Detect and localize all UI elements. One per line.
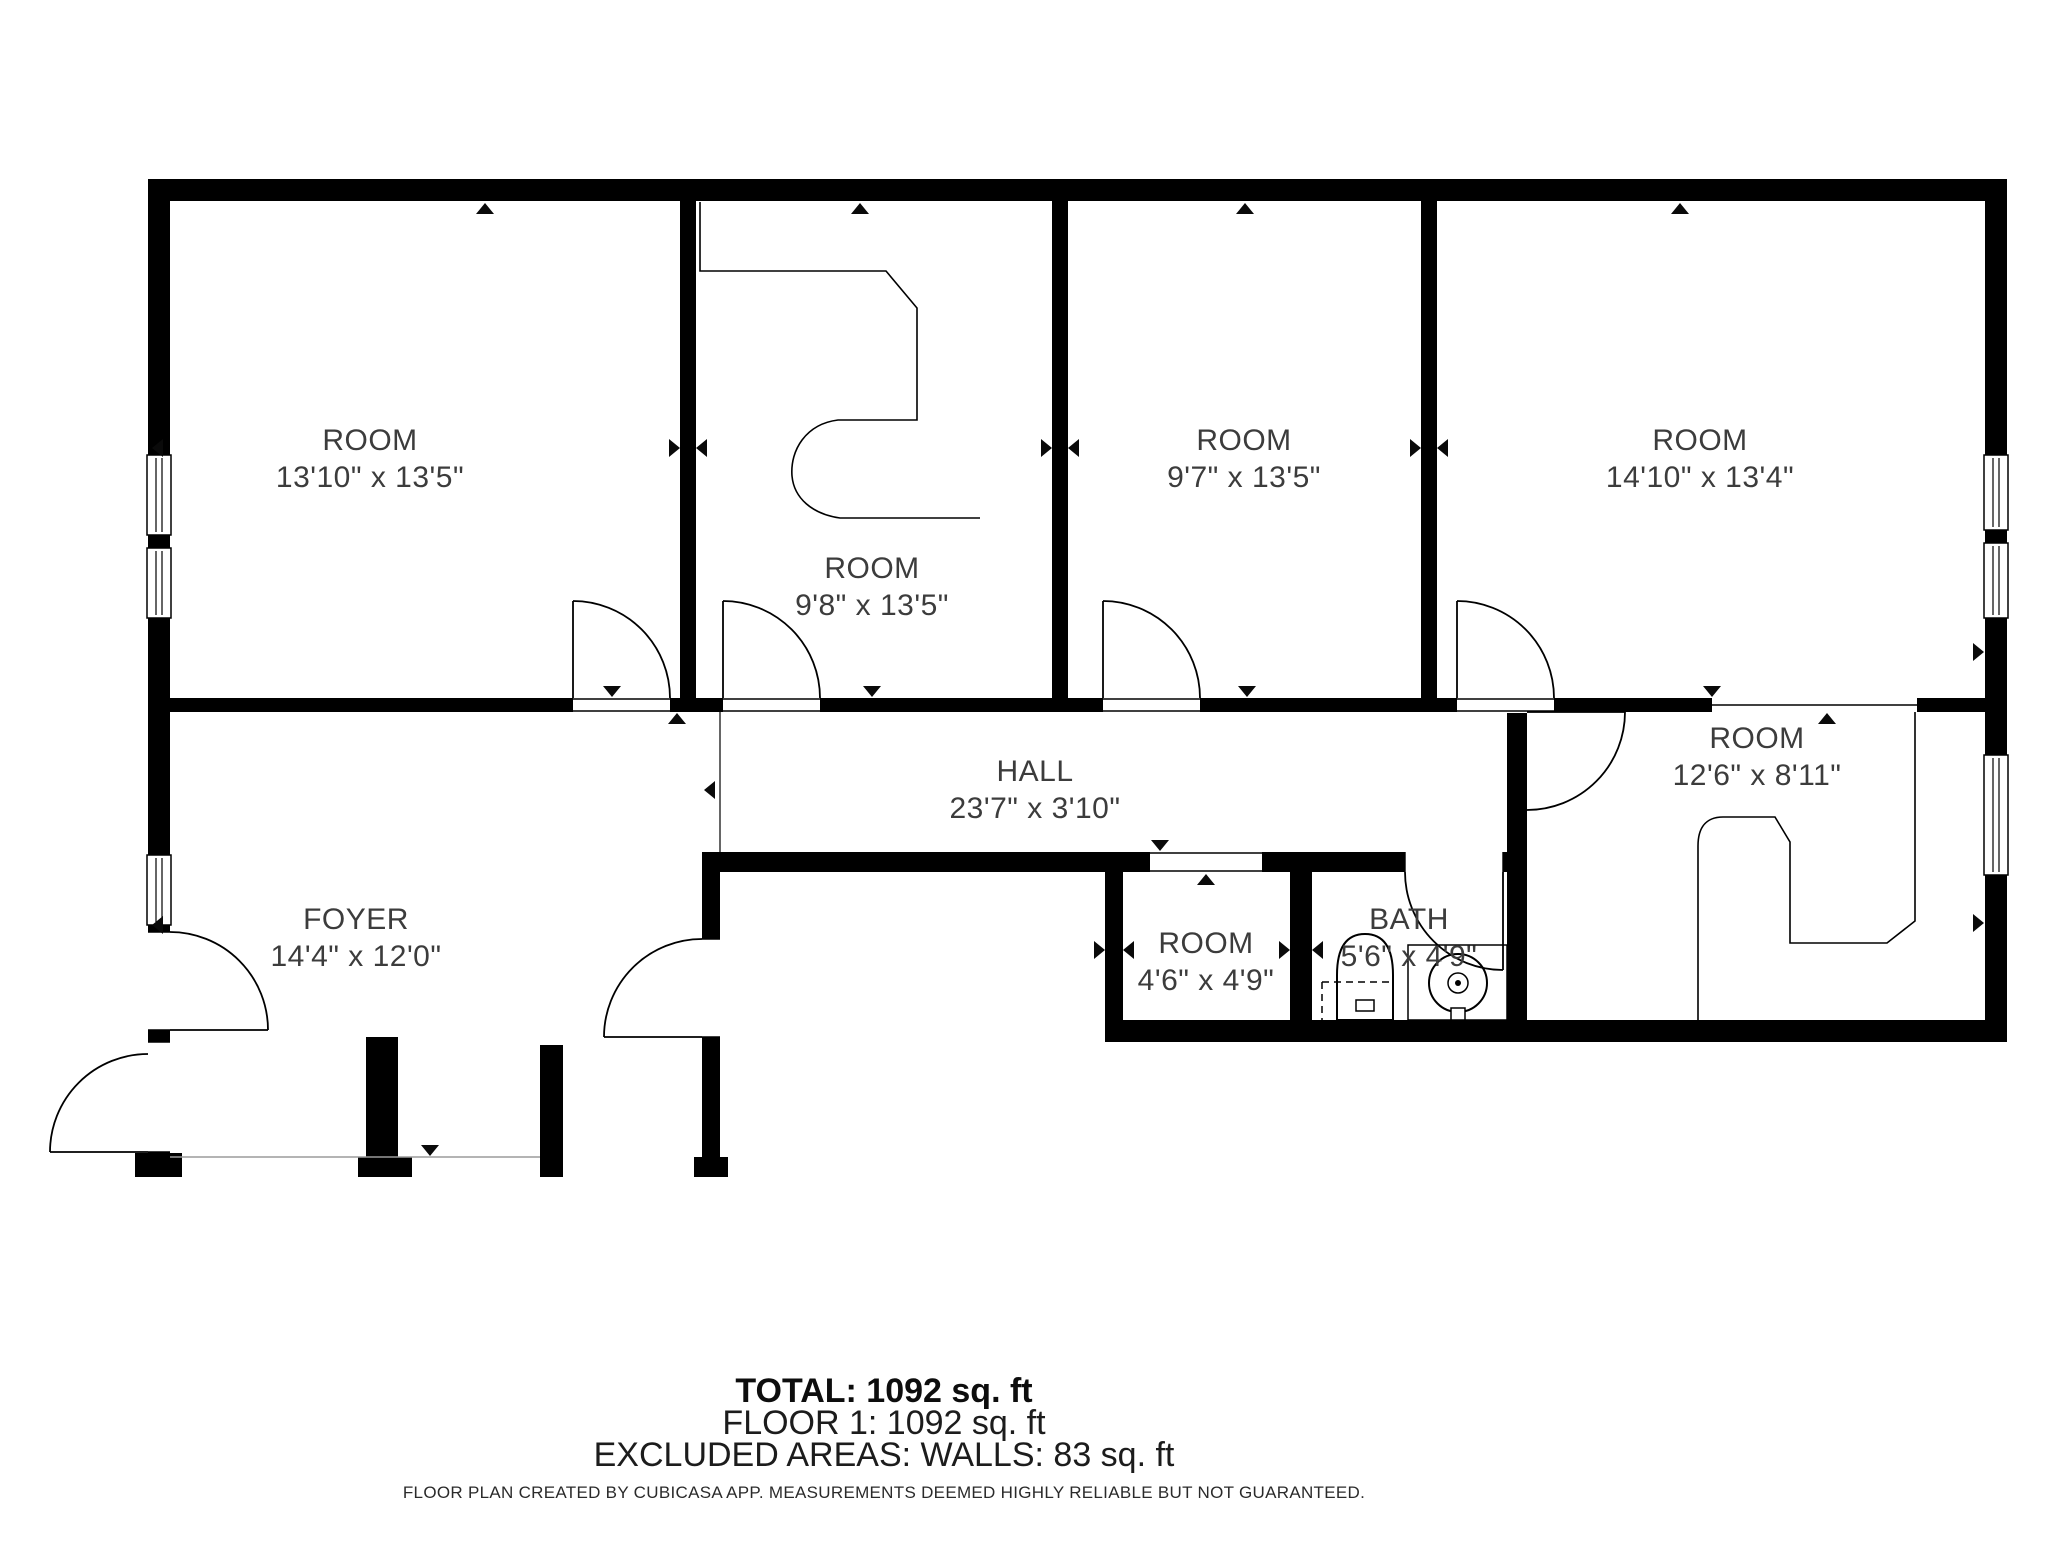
marker-left-icon [1312,941,1323,959]
wall-smallroom-left [1105,872,1123,1020]
marker-down-icon [863,686,881,697]
marker-left-icon [1437,439,1448,457]
marker-left-icon [704,781,715,799]
marker-down-icon [1703,686,1721,697]
marker-down-icon [1151,840,1169,851]
marker-up-icon [668,713,686,724]
bath-label: BATH [1369,903,1449,936]
wall-rightroom-left [1507,698,1527,1042]
room2-dims: 9'8" x 13'5" [795,589,949,622]
wall-room2-room3 [1052,201,1068,698]
door-opening-foyer-upper [147,932,171,1030]
doors [50,601,1625,1152]
window-room1-lower [147,548,171,618]
walls [135,179,2007,1177]
door-opening-bath [1405,851,1503,873]
marker-left-icon [1068,439,1079,457]
wall-top [148,179,2007,201]
footer-disclaimer: FLOOR PLAN CREATED BY CUBICASA APP. MEAS… [403,1483,1365,1502]
window-room1-upper [147,455,171,535]
door-opening-foyer-entry [147,1042,171,1152]
room3-label: ROOM [1196,424,1291,457]
rightroom-dims: 12'6" x 8'11" [1673,759,1842,792]
wall-foyer-right-base [694,1157,728,1177]
marker-up-icon [476,203,494,214]
marker-up-icon [1236,203,1254,214]
door-rightroom [1527,712,1625,810]
floor-plan-canvas: ROOM 13'10" x 13'5" ROOM 9'8" x 13'5" RO… [0,0,2048,1536]
marker-right-icon [1973,643,1984,661]
window-foyer [147,855,171,925]
room1-dims: 13'10" x 13'5" [276,461,464,494]
marker-right-icon [669,439,680,457]
door-foyer-upper [170,932,268,1030]
door-foyer-hall [604,939,702,1037]
marker-down-icon [421,1145,439,1156]
foyer-dims: 14'4" x 12'0" [270,940,441,973]
hall-label: HALL [996,755,1073,788]
marker-right-icon [1410,439,1421,457]
wall-smallroom-bath [1290,872,1312,1020]
bath-dims: 5'6" x 4'9" [1341,940,1478,973]
wall-bottom-right-section [1105,1020,2007,1042]
room4-label: ROOM [1652,424,1747,457]
window-rightroom [1984,755,2008,875]
stair-outline-room2 [700,202,980,518]
room4-dims: 14'10" x 13'4" [1606,461,1794,494]
door-room3 [1103,601,1200,698]
room3-dims: 9'7" x 13'5" [1167,461,1321,494]
hall-dims: 23'7" x 3'10" [949,792,1120,825]
marker-right-icon [1094,941,1105,959]
door-room1 [573,601,670,698]
marker-right-icon [1041,439,1052,457]
marker-up-icon [851,203,869,214]
marker-up-icon [1197,874,1215,885]
wall-hall-top [148,698,1985,712]
smallroom-dims: 4'6" x 4'9" [1138,964,1275,997]
opening-smallroom [1150,851,1262,873]
rightroom-label: ROOM [1709,722,1804,755]
room2-label: ROOM [824,552,919,585]
door-foyer-entry [50,1054,148,1152]
smallroom-label: ROOM [1158,927,1253,960]
wall-room1-room2 [680,201,696,698]
marker-right-icon [1973,914,1984,932]
wall-foyer-pillar [366,1037,398,1157]
window-room4-upper [1984,455,2008,530]
marker-right-icon [1279,941,1290,959]
marker-up-icon [1818,713,1836,724]
foyer-label: FOYER [303,903,409,936]
door-room4 [1457,601,1554,698]
door-opening-foyer-hall [701,939,721,1037]
wall-room3-room4 [1421,201,1437,698]
marker-left-icon [1123,941,1134,959]
marker-down-icon [603,686,621,697]
marker-down-icon [1238,686,1256,697]
floor-plan-page: ROOM 13'10" x 13'5" ROOM 9'8" x 13'5" RO… [0,0,2048,1536]
marker-left-icon [696,439,707,457]
wall-foyer-pillar-base [358,1157,412,1177]
wall-hall-bottom [702,852,1527,872]
window-room4-lower [1984,543,2008,618]
wall-foyer-bar [540,1045,563,1177]
footer: TOTAL: 1092 sq. ft FLOOR 1: 1092 sq. ft … [403,1372,1365,1502]
footer-excluded: EXCLUDED AREAS: WALLS: 83 sq. ft [594,1436,1175,1474]
marker-up-icon [1671,203,1689,214]
room1-label: ROOM [322,424,417,457]
